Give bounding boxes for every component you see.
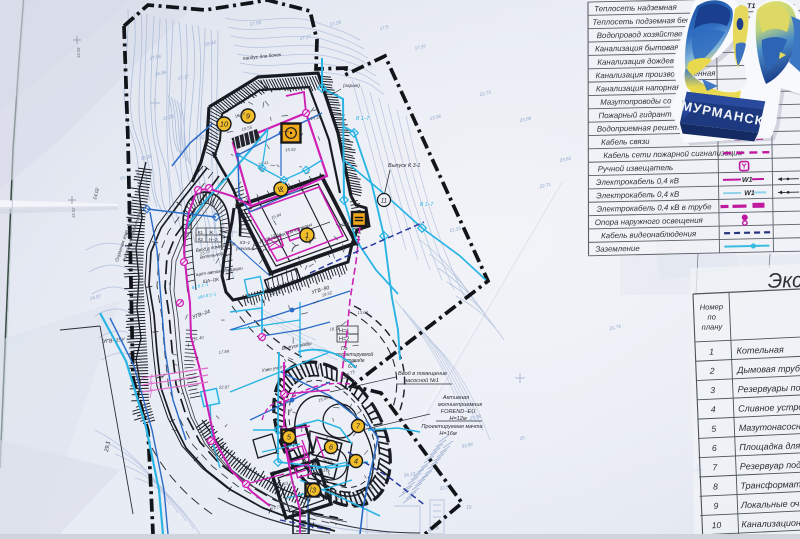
- svg-text:Электрокабель 0,4 кВ: Электрокабель 0,4 кВ: [596, 190, 679, 201]
- svg-text:Канализация напорная: Канализация напорная: [596, 83, 681, 94]
- svg-text:Мазутонасосна: Мазутонасосна: [739, 421, 800, 433]
- svg-text:Выпуск К 3-1: Выпуск К 3-1: [388, 163, 420, 169]
- svg-text:Трансформатор: Трансформатор: [740, 479, 800, 491]
- svg-text:Пожарный гидрант: Пожарный гидрант: [598, 110, 672, 121]
- svg-text:6: 6: [712, 443, 717, 453]
- svg-text:10: 10: [220, 120, 229, 129]
- svg-text:В 1−7: В 1−7: [356, 116, 369, 122]
- svg-text:насосной №1: насосной №1: [404, 377, 439, 384]
- svg-text:Кабель связи: Кабель связи: [601, 137, 650, 147]
- svg-text:FOREND−EU: FOREND−EU: [441, 409, 477, 415]
- svg-text:Номер: Номер: [700, 302, 724, 312]
- svg-text:Локальные очис: Локальные очис: [740, 498, 800, 510]
- svg-text:Н=1: Н=1: [339, 329, 349, 335]
- svg-text:Дымовая труба: Дымовая труба: [736, 363, 800, 375]
- svg-text:18.76: 18.76: [329, 326, 340, 332]
- svg-text:Котельная: Котельная: [736, 344, 784, 355]
- svg-text:(гараж): (гараж): [343, 83, 360, 89]
- svg-text:3: 3: [710, 385, 715, 395]
- svg-text:4: 4: [711, 404, 716, 414]
- svg-text:11: 11: [381, 199, 387, 205]
- svg-text:Канализация бытовая: Канализация бытовая: [595, 43, 679, 54]
- svg-text:по: по: [707, 312, 716, 321]
- svg-text:Канализация дождевая: Канализация дождевая: [597, 56, 683, 67]
- svg-text:плану: плану: [701, 322, 723, 332]
- svg-text:5: 5: [711, 424, 716, 434]
- svg-text:9: 9: [713, 501, 718, 511]
- svg-text:молниеприемник: молниеприемник: [438, 402, 483, 408]
- svg-text:Ввод в помещение: Ввод в помещение: [398, 371, 447, 377]
- svg-text:Активная: Активная: [442, 395, 469, 401]
- svg-text:Площадка для А: Площадка для А: [739, 440, 800, 452]
- svg-text:13.63: 13.63: [357, 310, 368, 315]
- svg-text:Канализационно: Канализационно: [741, 518, 800, 530]
- svg-text:К3−1: К3−1: [240, 240, 251, 245]
- svg-text:W1: W1: [744, 190, 755, 197]
- svg-text:4: 4: [354, 457, 358, 466]
- svg-text:16.02: 16.02: [71, 207, 76, 218]
- svg-text:Ж: Ж: [209, 230, 213, 235]
- svg-text:Н=2: Н=2: [339, 337, 349, 343]
- svg-text:Проектируемая мачта: Проектируемая мачта: [421, 424, 482, 430]
- svg-text:Ручной извещатель: Ручной извещатель: [598, 163, 674, 174]
- svg-text:Н=16м: Н=16м: [439, 431, 457, 437]
- svg-text:2: 2: [709, 366, 715, 376]
- svg-text:Т1: Т1: [747, 3, 755, 10]
- svg-text:8: 8: [713, 481, 718, 491]
- svg-text:Электрокабель 0,4 кВ: Электрокабель 0,4 кВ: [596, 176, 679, 187]
- svg-text:22.87: 22.87: [218, 384, 230, 390]
- svg-text:К2: К2: [198, 237, 204, 242]
- svg-text:Н−2: Н−2: [209, 237, 218, 242]
- svg-text:Сливное устрой: Сливное устрой: [738, 402, 800, 414]
- svg-text:10: 10: [712, 520, 722, 530]
- svg-text:Теплосеть надземная: Теплосеть надземная: [594, 3, 678, 14]
- svg-text:Резервуары по: Резервуары по: [738, 383, 800, 395]
- svg-text:16.08: 16.08: [76, 47, 81, 58]
- svg-text:Заземление: Заземление: [595, 244, 640, 254]
- svg-text:Резервуар подзе: Резервуар подзе: [740, 460, 800, 472]
- svg-text:В 1−7: В 1−7: [420, 202, 433, 208]
- svg-text:W1: W1: [742, 177, 753, 184]
- svg-text:К1: К1: [198, 230, 204, 235]
- svg-text:1: 1: [709, 346, 714, 356]
- svg-text:15: 15: [466, 505, 472, 511]
- svg-text:15.02: 15.02: [285, 147, 296, 152]
